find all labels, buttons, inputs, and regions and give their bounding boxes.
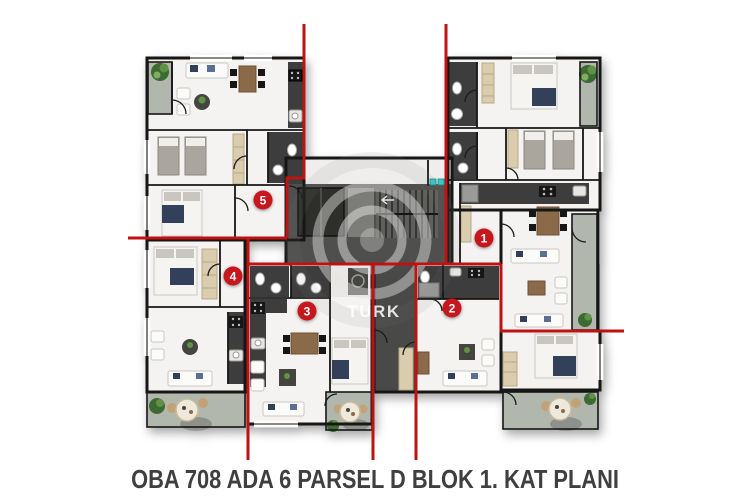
floor-plan-svg: TURK [0,0,750,500]
unit-marker-1: 1 [475,229,494,248]
plan-title: OBA 708 ADA 6 PARSEL D BLOK 1. KAT PLANI [131,464,619,495]
hall-cabinet [399,348,413,390]
unit-marker-3: 3 [298,302,317,321]
unit-marker-5: 5 [254,191,273,210]
unit-marker-2: 2 [443,299,462,318]
unit-marker-4: 4 [224,267,243,286]
floor-plan-image: TURK 12345 OBA 708 ADA 6 PARSEL D BLOK 1… [0,0,750,500]
